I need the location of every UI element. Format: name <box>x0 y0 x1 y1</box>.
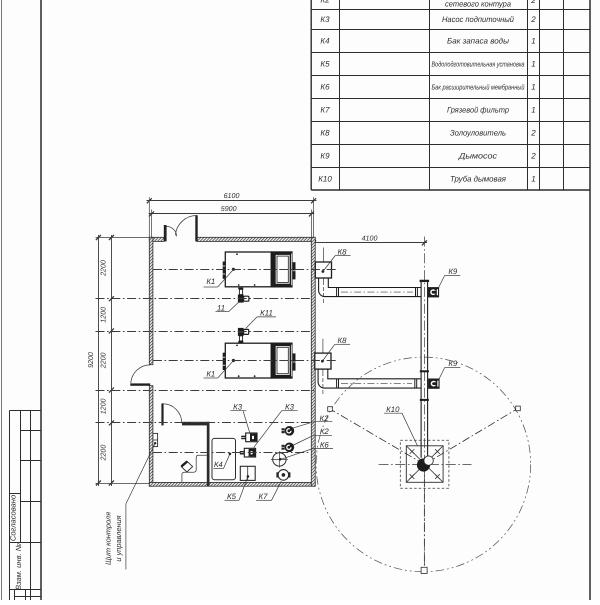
svg-text:К6: К6 <box>320 82 330 91</box>
svg-text:Труба дымовая: Труба дымовая <box>450 174 507 183</box>
svg-text:Бак запаса воды: Бак запаса воды <box>447 36 509 45</box>
svg-text:2: 2 <box>530 15 536 24</box>
svg-text:К5: К5 <box>320 59 330 68</box>
svg-text:К2: К2 <box>320 0 330 5</box>
svg-text:К1: К1 <box>206 369 215 378</box>
svg-text:К3: К3 <box>320 15 330 24</box>
svg-text:1: 1 <box>531 105 535 114</box>
svg-text:Водоподготовительная установка: Водоподготовительная установка <box>432 59 525 68</box>
svg-text:2200: 2200 <box>100 352 108 369</box>
svg-text:К9: К9 <box>320 151 330 160</box>
svg-text:6100: 6100 <box>224 192 240 200</box>
svg-text:и управления: и управления <box>114 515 123 561</box>
svg-text:11: 11 <box>217 303 225 312</box>
svg-text:К10: К10 <box>318 174 332 183</box>
svg-text:К8: К8 <box>320 128 330 137</box>
svg-text:К11: К11 <box>260 309 273 318</box>
svg-text:К7: К7 <box>259 492 269 501</box>
svg-text:Щит контроля: Щит контроля <box>103 512 112 565</box>
svg-text:К7: К7 <box>320 105 330 114</box>
svg-text:1: 1 <box>531 174 535 183</box>
svg-text:9200: 9200 <box>87 352 95 368</box>
svg-text:К4: К4 <box>214 460 223 469</box>
svg-text:5900: 5900 <box>221 205 237 213</box>
svg-text:1200: 1200 <box>100 307 108 323</box>
svg-text:К3: К3 <box>285 403 295 412</box>
svg-text:2200: 2200 <box>100 445 108 462</box>
svg-text:К8: К8 <box>338 336 348 345</box>
svg-text:К10: К10 <box>386 405 400 414</box>
svg-text:К6: К6 <box>320 440 330 449</box>
svg-text:4100: 4100 <box>362 235 378 243</box>
svg-text:К2: К2 <box>320 427 330 436</box>
svg-text:1: 1 <box>531 36 535 45</box>
svg-text:К1: К1 <box>206 277 215 286</box>
svg-text:2: 2 <box>530 151 536 160</box>
svg-text:Дымосос: Дымосос <box>458 151 497 160</box>
svg-text:1: 1 <box>531 82 535 91</box>
svg-text:Согласовано: Согласовано <box>8 495 17 541</box>
svg-text:Насос подпиточный: Насос подпиточный <box>442 15 515 24</box>
svg-text:К3: К3 <box>233 403 243 412</box>
svg-text:1: 1 <box>531 59 535 68</box>
svg-text:К8: К8 <box>338 247 348 256</box>
svg-text:Золоуловитель: Золоуловитель <box>450 128 506 137</box>
svg-text:К5: К5 <box>227 492 237 501</box>
svg-text:1200: 1200 <box>100 398 108 414</box>
svg-text:К4: К4 <box>320 36 330 45</box>
svg-text:К9: К9 <box>448 267 458 276</box>
svg-text:2: 2 <box>530 128 536 137</box>
svg-text:2200: 2200 <box>100 260 108 277</box>
svg-text:Грязевой фильтр: Грязевой фильтр <box>447 105 510 114</box>
svg-text:Взам. инв. №: Взам. инв. № <box>14 543 23 590</box>
svg-text:2: 2 <box>530 0 536 5</box>
svg-text:Бак расширительный мембранный: Бак расширительный мембранный <box>432 82 525 91</box>
svg-text:сетевого контура: сетевого контура <box>445 0 512 9</box>
